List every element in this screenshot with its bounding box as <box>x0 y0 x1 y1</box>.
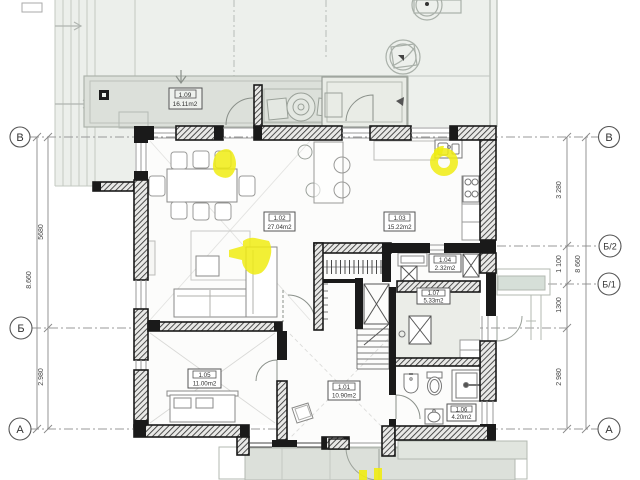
svg-text:В: В <box>16 132 23 144</box>
svg-text:3 280: 3 280 <box>556 181 563 199</box>
svg-text:11.00m2: 11.00m2 <box>193 381 217 388</box>
svg-text:5680: 5680 <box>38 224 45 240</box>
svg-text:1.01: 1.01 <box>338 384 351 391</box>
svg-text:А: А <box>16 424 24 436</box>
svg-text:15.22m2: 15.22m2 <box>387 224 412 231</box>
svg-text:5.33m2: 5.33m2 <box>423 299 444 305</box>
svg-text:1.09: 1.09 <box>179 92 192 99</box>
svg-text:1.02: 1.02 <box>273 215 286 222</box>
svg-text:1.06: 1.06 <box>456 408 468 414</box>
svg-text:16.11m2: 16.11m2 <box>173 101 198 108</box>
svg-text:А: А <box>605 424 613 436</box>
svg-text:1.07: 1.07 <box>428 291 440 297</box>
svg-text:2.32m2: 2.32m2 <box>435 265 456 272</box>
svg-text:2 980: 2 980 <box>556 368 563 386</box>
svg-text:Б: Б <box>17 323 24 335</box>
svg-text:4.20m2: 4.20m2 <box>451 415 472 421</box>
svg-text:2.980: 2.980 <box>38 368 45 386</box>
svg-text:Б/1: Б/1 <box>602 280 615 290</box>
svg-text:1.04: 1.04 <box>439 257 452 264</box>
svg-text:1 100: 1 100 <box>556 255 563 273</box>
svg-text:1300: 1300 <box>556 297 563 313</box>
svg-text:1.03: 1.03 <box>393 215 406 222</box>
svg-text:Б/2: Б/2 <box>603 242 616 252</box>
svg-text:8 660: 8 660 <box>575 255 582 273</box>
svg-text:8.660: 8.660 <box>26 271 33 289</box>
svg-text:1.05: 1.05 <box>198 372 211 379</box>
svg-text:10.90m2: 10.90m2 <box>332 393 357 400</box>
svg-text:В: В <box>605 132 612 144</box>
svg-text:27.04m2: 27.04m2 <box>267 224 292 231</box>
